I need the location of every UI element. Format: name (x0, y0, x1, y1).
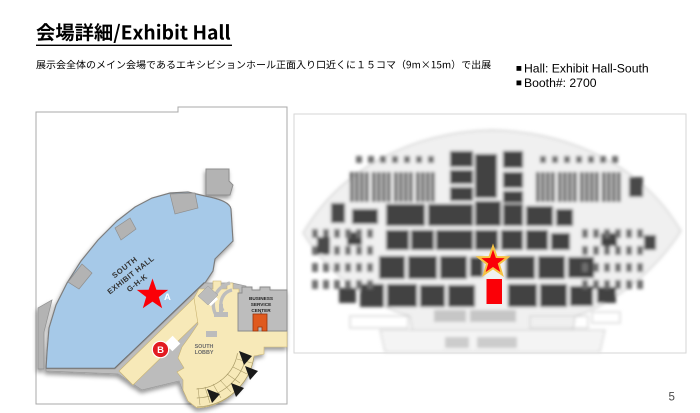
svg-text:BUSINESS: BUSINESS (249, 296, 273, 301)
svg-text:A: A (164, 292, 171, 303)
svg-text:B: B (157, 345, 164, 356)
svg-text:Booth#: 2700: Booth#: 2700 (524, 76, 597, 90)
svg-text:SERVICE: SERVICE (251, 302, 272, 307)
svg-text:Hall: Exhibit Hall-South: Hall: Exhibit Hall-South (524, 62, 649, 76)
svg-text:5: 5 (669, 392, 675, 404)
svg-text:LOBBY: LOBBY (195, 350, 214, 356)
